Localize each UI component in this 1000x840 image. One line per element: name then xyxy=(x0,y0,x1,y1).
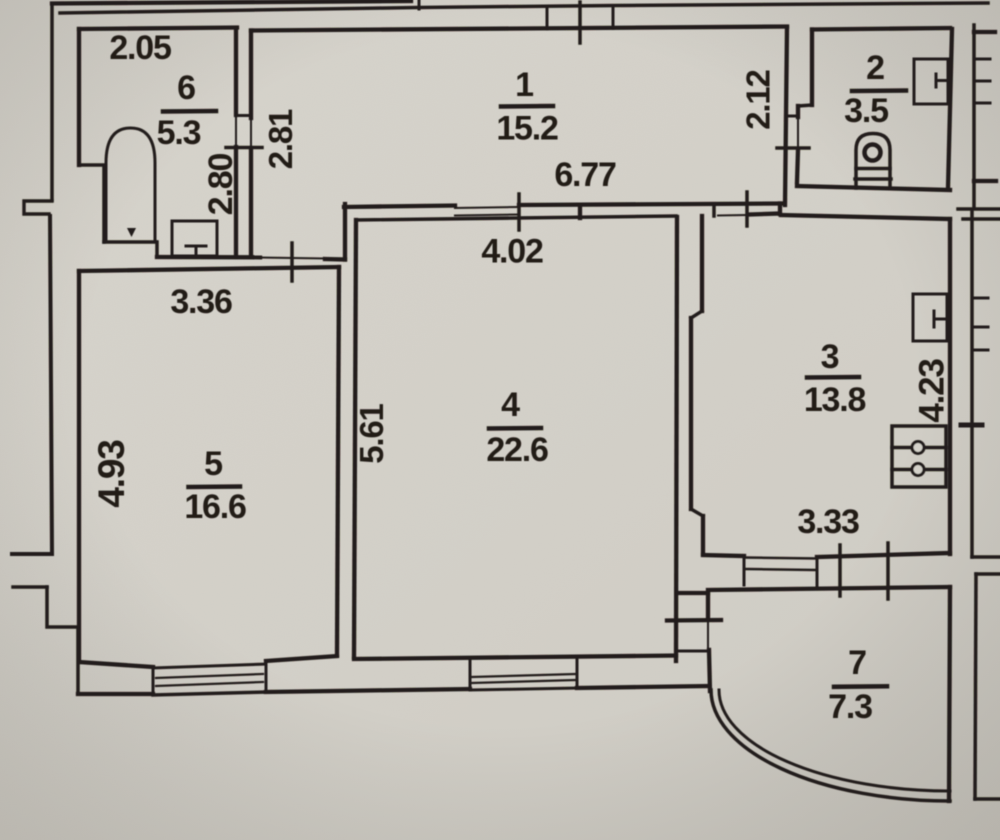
svg-text:5.61: 5.61 xyxy=(353,403,390,463)
svg-text:6.77: 6.77 xyxy=(554,156,616,194)
svg-text:4: 4 xyxy=(501,386,520,424)
svg-text:1: 1 xyxy=(515,66,533,104)
svg-text:4.93: 4.93 xyxy=(91,440,132,508)
svg-text:3.33: 3.33 xyxy=(797,503,859,541)
svg-text:22.6: 22.6 xyxy=(486,431,548,469)
svg-text:7.3: 7.3 xyxy=(828,688,872,726)
svg-text:15.2: 15.2 xyxy=(496,110,558,148)
svg-text:16.6: 16.6 xyxy=(184,488,246,526)
svg-text:4.02: 4.02 xyxy=(481,233,543,271)
svg-text:2.81: 2.81 xyxy=(262,109,299,169)
svg-text:4.23: 4.23 xyxy=(913,359,952,423)
svg-text:7: 7 xyxy=(848,644,866,682)
svg-text:3.36: 3.36 xyxy=(170,283,232,321)
svg-text:2: 2 xyxy=(866,49,884,87)
svg-text:5.3: 5.3 xyxy=(157,114,201,152)
svg-text:2.12: 2.12 xyxy=(740,69,777,129)
svg-text:3: 3 xyxy=(821,338,839,376)
svg-text:3.5: 3.5 xyxy=(844,92,888,130)
svg-text:13.8: 13.8 xyxy=(804,381,866,419)
svg-text:2.80: 2.80 xyxy=(202,154,240,216)
svg-text:6: 6 xyxy=(177,69,195,107)
svg-text:2.05: 2.05 xyxy=(109,29,171,67)
svg-text:5: 5 xyxy=(204,445,222,483)
